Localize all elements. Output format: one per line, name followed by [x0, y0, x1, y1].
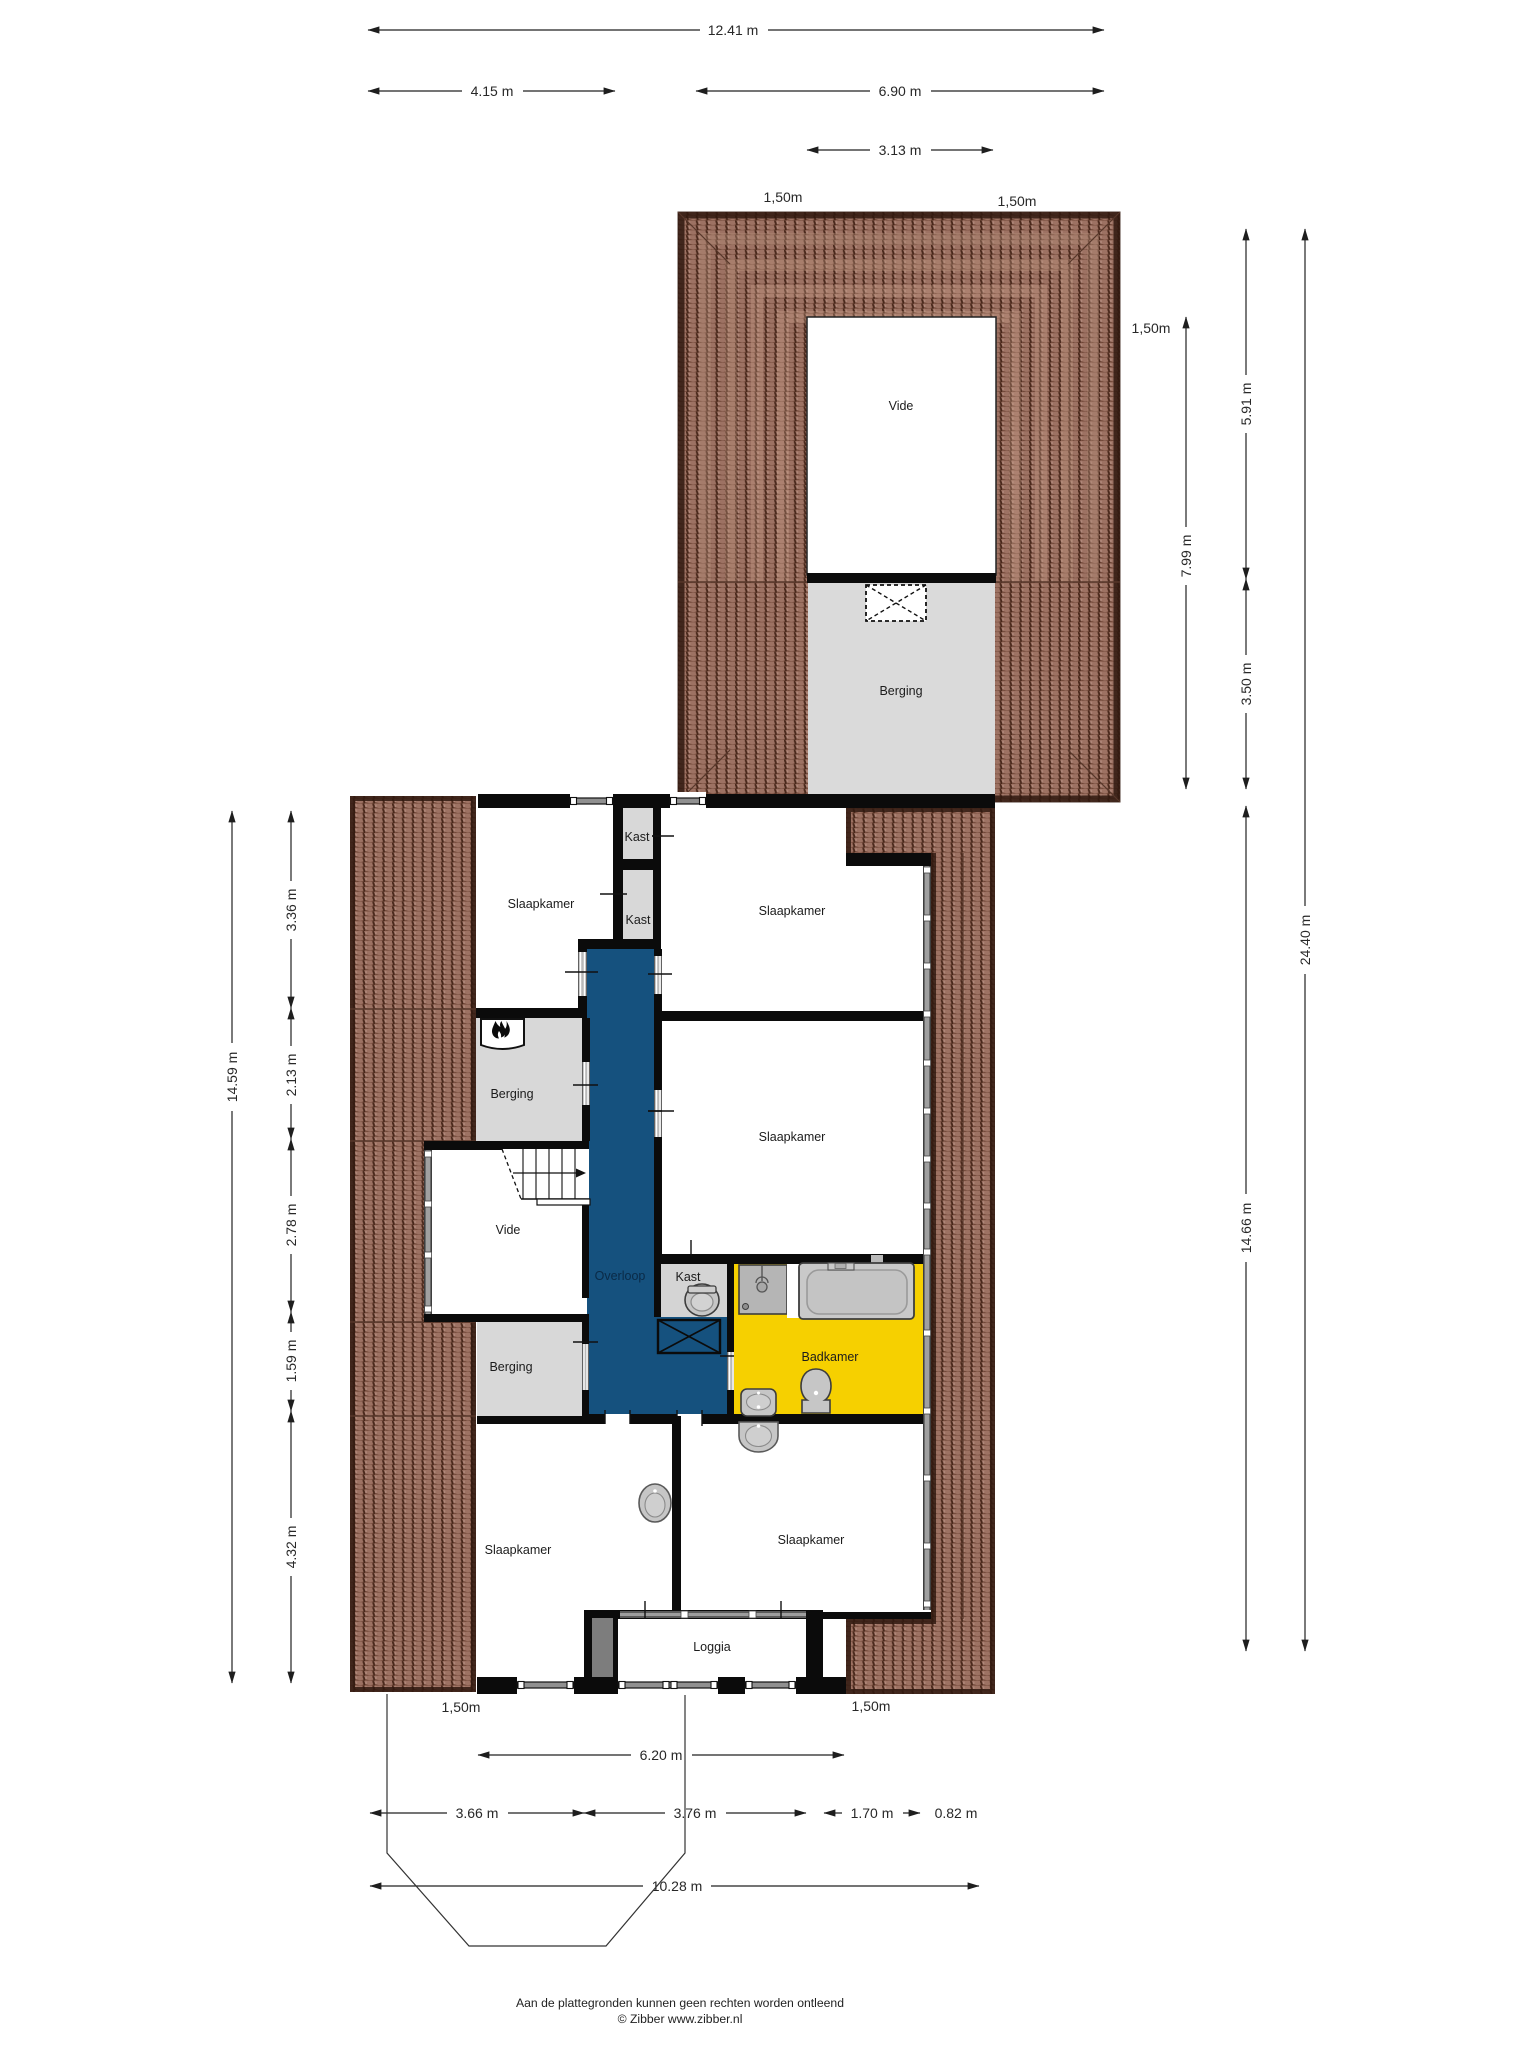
- svg-text:7.99 m: 7.99 m: [1178, 535, 1194, 578]
- svg-text:10.28 m: 10.28 m: [652, 1878, 703, 1894]
- svg-text:Aan de plattegronden kunnen ge: Aan de plattegronden kunnen geen rechten…: [516, 1996, 844, 2010]
- svg-text:Slaapkamer: Slaapkamer: [508, 897, 575, 911]
- svg-text:4.15 m: 4.15 m: [471, 83, 514, 99]
- svg-text:Loggia: Loggia: [693, 1640, 731, 1654]
- svg-text:Vide: Vide: [889, 399, 914, 413]
- svg-text:Kast: Kast: [624, 830, 650, 844]
- svg-text:Berging: Berging: [490, 1087, 533, 1101]
- svg-text:1.59 m: 1.59 m: [283, 1340, 299, 1383]
- svg-text:Vide: Vide: [496, 1223, 521, 1237]
- svg-text:1,50m: 1,50m: [764, 189, 803, 205]
- svg-text:6.20 m: 6.20 m: [640, 1747, 683, 1763]
- svg-text:Slaapkamer: Slaapkamer: [485, 1543, 552, 1557]
- svg-text:3.50 m: 3.50 m: [1238, 663, 1254, 706]
- svg-text:4.32 m: 4.32 m: [283, 1526, 299, 1569]
- svg-text:3.76 m: 3.76 m: [674, 1805, 717, 1821]
- svg-text:Berging: Berging: [489, 1360, 532, 1374]
- svg-text:Berging: Berging: [879, 684, 922, 698]
- svg-text:3.66 m: 3.66 m: [456, 1805, 499, 1821]
- svg-text:Slaapkamer: Slaapkamer: [778, 1533, 845, 1547]
- svg-text:2.13 m: 2.13 m: [283, 1054, 299, 1097]
- svg-text:Slaapkamer: Slaapkamer: [759, 904, 826, 918]
- svg-text:24.40 m: 24.40 m: [1297, 915, 1313, 966]
- svg-text:2.78 m: 2.78 m: [283, 1204, 299, 1247]
- svg-text:Slaapkamer: Slaapkamer: [759, 1130, 826, 1144]
- svg-text:3.36 m: 3.36 m: [283, 889, 299, 932]
- svg-text:0.82 m: 0.82 m: [935, 1805, 978, 1821]
- svg-text:1,50m: 1,50m: [442, 1699, 481, 1715]
- svg-text:14.66 m: 14.66 m: [1238, 1203, 1254, 1254]
- svg-text:1.70 m: 1.70 m: [851, 1805, 894, 1821]
- svg-text:5.91 m: 5.91 m: [1238, 383, 1254, 426]
- svg-text:3.13 m: 3.13 m: [879, 142, 922, 158]
- svg-text:14.59 m: 14.59 m: [224, 1052, 240, 1103]
- svg-text:1,50m: 1,50m: [852, 1698, 891, 1714]
- svg-text:6.90 m: 6.90 m: [879, 83, 922, 99]
- svg-text:Kast: Kast: [625, 913, 651, 927]
- svg-text:Badkamer: Badkamer: [802, 1350, 859, 1364]
- svg-text:Overloop: Overloop: [595, 1269, 646, 1283]
- svg-text:Kast: Kast: [675, 1270, 701, 1284]
- svg-text:12.41 m: 12.41 m: [708, 22, 759, 38]
- svg-text:1,50m: 1,50m: [1132, 320, 1171, 336]
- svg-text:© Zibber www.zibber.nl: © Zibber www.zibber.nl: [618, 2012, 743, 2026]
- svg-text:1,50m: 1,50m: [998, 193, 1037, 209]
